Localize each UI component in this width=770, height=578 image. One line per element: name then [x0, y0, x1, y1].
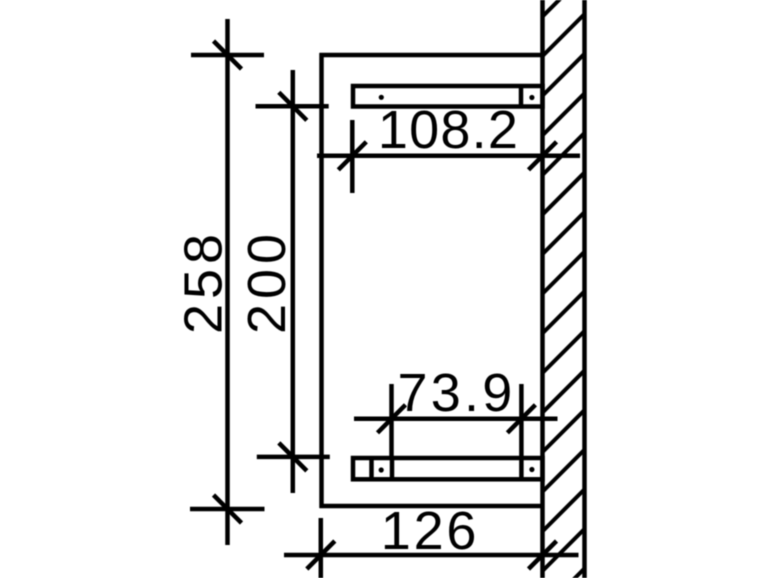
svg-text:258: 258	[174, 229, 234, 334]
svg-text:200: 200	[237, 229, 297, 334]
svg-text:108.2: 108.2	[378, 100, 519, 160]
svg-text:126: 126	[381, 501, 480, 561]
svg-text:73.9: 73.9	[398, 363, 516, 423]
